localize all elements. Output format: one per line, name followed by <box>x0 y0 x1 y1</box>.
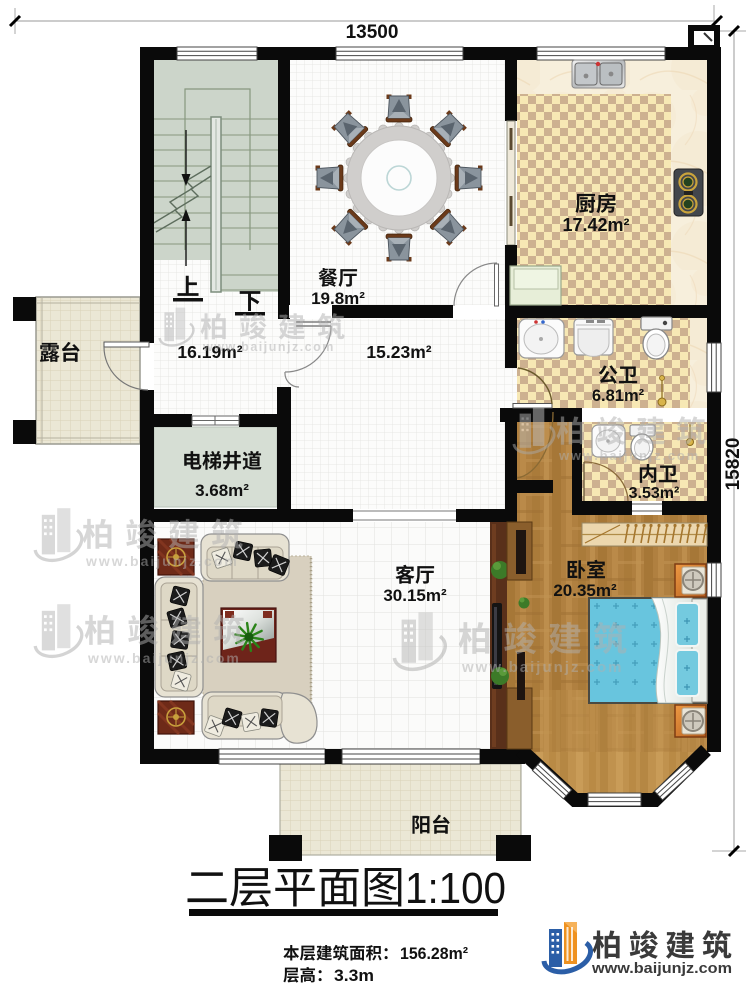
svg-text:19.8m²: 19.8m² <box>311 289 365 308</box>
svg-text:www.baijunjz.com: www.baijunjz.com <box>202 340 335 354</box>
svg-text:www.baijunjz.com: www.baijunjz.com <box>85 553 239 569</box>
svg-text:www.baijunjz.com: www.baijunjz.com <box>591 961 732 977</box>
svg-text:www.baijunjz.com: www.baijunjz.com <box>558 448 700 463</box>
svg-text:20.35m²: 20.35m² <box>553 581 617 600</box>
svg-text:3.68m²: 3.68m² <box>195 481 249 500</box>
svg-text:3.53m²: 3.53m² <box>629 485 680 502</box>
svg-text:156.28m²: 156.28m² <box>400 945 468 963</box>
svg-text:15820: 15820 <box>723 438 744 491</box>
svg-text:13500: 13500 <box>346 22 399 43</box>
svg-text:1:100: 1:100 <box>405 864 506 913</box>
svg-text:30.15m²: 30.15m² <box>383 586 447 605</box>
svg-text:17.42m²: 17.42m² <box>562 215 629 235</box>
svg-text:3.3m: 3.3m <box>334 967 374 985</box>
svg-text:www.baijunjz.com: www.baijunjz.com <box>87 650 241 666</box>
svg-text:6.81m²: 6.81m² <box>592 387 645 405</box>
svg-text:15.23m²: 15.23m² <box>366 342 431 362</box>
svg-text:www.baijunjz.com: www.baijunjz.com <box>461 659 623 676</box>
